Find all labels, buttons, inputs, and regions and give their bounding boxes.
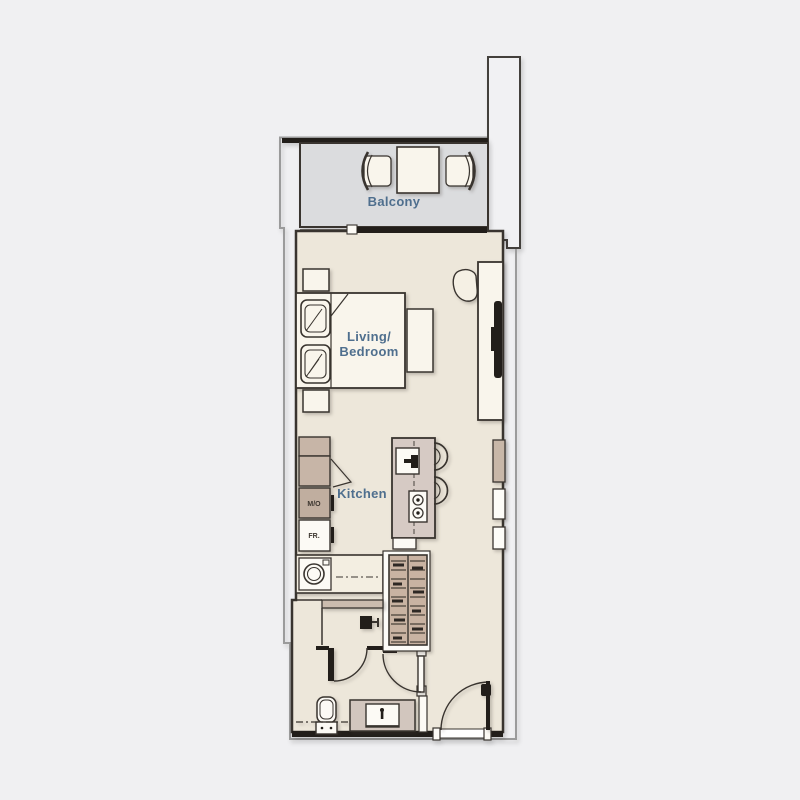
shower-door-leaf — [328, 648, 334, 681]
bathroom-door-leaf — [418, 656, 424, 692]
floor-plan-canvas: Balcony Living/ Bedroom — [0, 0, 800, 800]
toilet — [316, 697, 337, 734]
wall-panel-2 — [493, 527, 505, 549]
mo-label: M/O — [307, 501, 321, 508]
nightstand-bottom — [303, 390, 329, 412]
living-label-line1: Living/ — [347, 329, 391, 344]
living-label-line2: Bedroom — [339, 344, 398, 359]
bench — [407, 309, 433, 372]
balcony-table — [397, 147, 439, 193]
shower-wall-stub — [316, 646, 329, 650]
vanity-sink — [350, 700, 415, 731]
sliding-door-jamb — [347, 225, 357, 234]
bath-wall-stub-left — [367, 646, 383, 650]
fridge-handle — [331, 527, 334, 543]
balcony-label: Balcony — [368, 194, 421, 209]
entry-jamb-left — [433, 728, 440, 740]
nightstand-top — [303, 269, 329, 291]
wall-column — [493, 440, 505, 482]
cabinet-upper — [299, 437, 330, 456]
washing-machine — [299, 558, 331, 590]
service-shaft — [488, 57, 520, 248]
wall-panel-1 — [493, 489, 505, 519]
fridge-label: FR. — [308, 533, 319, 540]
cabinet-lower — [299, 456, 330, 486]
faucet-icon — [411, 455, 418, 468]
kitchen-label: Kitchen — [337, 486, 387, 501]
entry-threshold — [437, 729, 487, 738]
pillow-top — [301, 300, 330, 337]
balcony-chair-right — [446, 152, 475, 190]
floor-plan-svg: Balcony Living/ Bedroom — [0, 0, 800, 800]
tv-screen — [494, 301, 502, 378]
island-step — [393, 538, 416, 549]
sliding-door — [357, 227, 487, 233]
shower-ledge — [322, 600, 383, 608]
cooktop — [409, 491, 427, 522]
entry-door-handle — [481, 684, 491, 696]
wardrobe-closet — [383, 551, 430, 651]
island-sink — [396, 448, 419, 474]
bottom-wall-left — [292, 731, 437, 737]
mo-handle — [331, 495, 334, 511]
pillow-bottom — [301, 345, 330, 383]
entry-partition-wall — [419, 696, 427, 732]
balcony-chair-left — [363, 152, 392, 190]
